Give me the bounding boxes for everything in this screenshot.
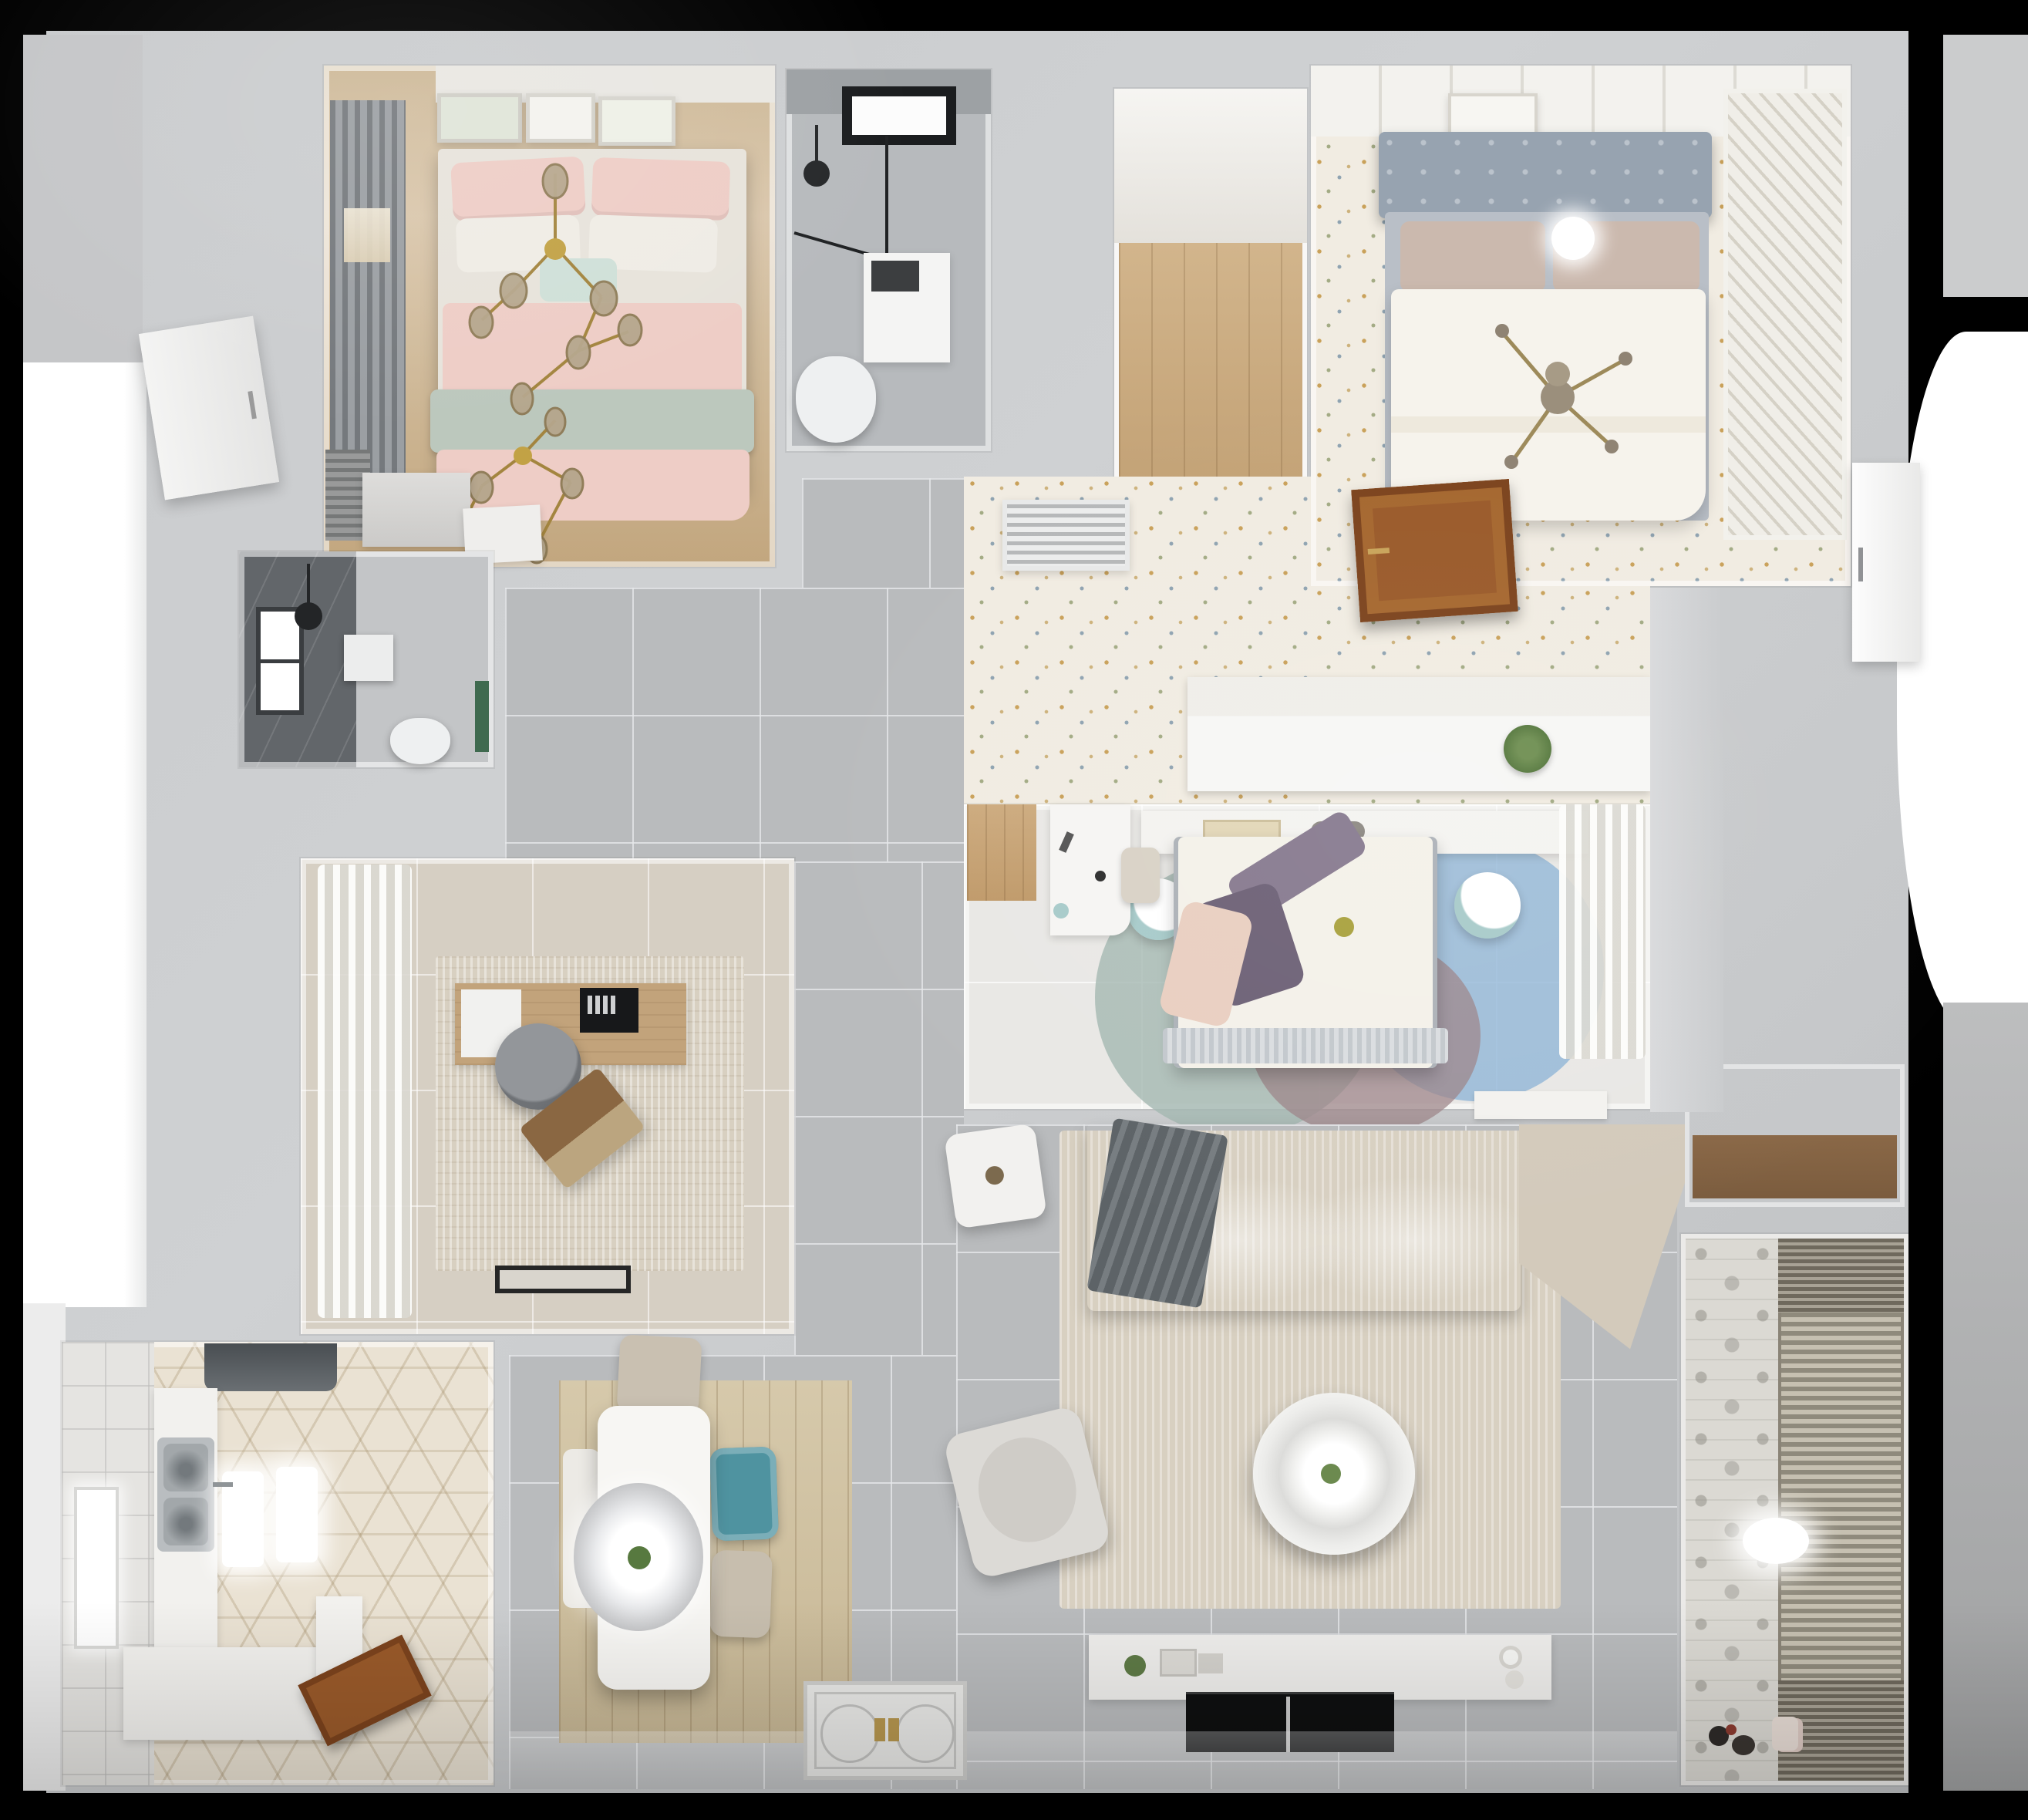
ceiling-wedge (1114, 89, 1307, 243)
bed-floral (1174, 837, 1437, 1068)
room-living (956, 1124, 1677, 1789)
toilet (390, 718, 450, 764)
storage-cabinet (864, 253, 950, 362)
console-frame-1 (1160, 1649, 1197, 1677)
floor-item-dark-2 (1732, 1735, 1755, 1755)
skylight-window (842, 86, 956, 145)
room-balcony (1681, 1234, 1908, 1785)
shower-arm (815, 125, 818, 163)
island-counter (123, 1647, 321, 1740)
side-table-plant (984, 1165, 1005, 1186)
sink-basin-1 (163, 1444, 208, 1491)
cabinet-controls (871, 261, 919, 292)
door-mat (495, 1266, 631, 1293)
window-mullion (261, 659, 299, 663)
exterior-right-white-blob (1897, 332, 2028, 1026)
exterior-right-bottom (1943, 1003, 2028, 1791)
console-vase-1 (1499, 1646, 1522, 1669)
sheer-curtains (318, 865, 412, 1318)
corridor-spur (802, 478, 964, 588)
room-corridor-upper (505, 588, 964, 861)
oval-pendant-lamp (574, 1483, 703, 1631)
footboard-stripe (1163, 1028, 1448, 1063)
pendant-light-glow-2 (276, 1467, 318, 1562)
wood-side-panel (967, 804, 1036, 901)
tufted-headboard (1379, 132, 1712, 218)
round-coffee-table (1253, 1393, 1415, 1555)
pen-cup (1059, 831, 1074, 853)
air-vent-grille (1002, 500, 1130, 571)
room-entry-foyer (509, 1731, 1677, 1789)
potted-plant (1504, 725, 1551, 773)
floral-sprig (1334, 917, 1354, 937)
laptop-keys (588, 996, 618, 1014)
console-plant (1124, 1655, 1146, 1677)
blind-stack-top (1778, 1239, 1904, 1313)
half-wall-console (1187, 677, 1650, 791)
open-wood-door (1351, 479, 1518, 622)
console-vase-2 (1505, 1670, 1524, 1689)
patterned-tile-wall (1686, 1239, 1778, 1781)
faucet (213, 1482, 233, 1487)
exterior-left-bottom (23, 1303, 66, 1791)
ceiling-light (1743, 1518, 1809, 1564)
teal-chair (709, 1447, 779, 1542)
dresser (362, 473, 470, 547)
shower-arm (307, 564, 310, 604)
plant-strip (475, 681, 489, 752)
open-white-door-bedroom2 (1852, 463, 1920, 662)
table-plant (1321, 1464, 1341, 1484)
door-handle (1858, 548, 1863, 581)
laptop (580, 988, 638, 1033)
gold-door-handles (874, 1718, 885, 1741)
wall-niche-box (344, 635, 393, 681)
gold-door-handle-2 (888, 1718, 899, 1741)
desk-chair (1121, 848, 1160, 903)
room-study (301, 858, 794, 1334)
double-basin-sink (157, 1437, 214, 1552)
plant-centerpiece (628, 1546, 651, 1569)
slatted-wardrobe (1723, 89, 1847, 540)
side-table (944, 1123, 1047, 1228)
door-arc-right (896, 1704, 955, 1763)
rain-shower-head (295, 602, 322, 630)
wood-shelf (1693, 1135, 1897, 1198)
room-bedroom-kids (964, 804, 1650, 1109)
door-handle (1368, 548, 1390, 554)
range-hood (204, 1343, 337, 1391)
desk-lamp-icon (1095, 871, 1106, 881)
beige-chair (709, 1550, 773, 1639)
rain-shower-head (803, 160, 830, 187)
exterior-left-white (23, 362, 147, 1307)
toilet (796, 356, 876, 443)
sink-basin-2 (163, 1498, 208, 1545)
nightstand-lamp-right (1454, 872, 1521, 939)
door-arc-left (820, 1704, 879, 1763)
front-door-panel (803, 1681, 967, 1780)
floor-item-red (1726, 1724, 1737, 1735)
venetian-blinds (1778, 1239, 1904, 1781)
tv-console (1089, 1635, 1551, 1700)
console-frame-2 (1198, 1653, 1223, 1673)
room-closet (1114, 89, 1307, 544)
room-bedroom-blush (324, 66, 775, 567)
exterior-right-top (1943, 35, 2028, 297)
corridor-lower (794, 861, 964, 1355)
room-kitchen (62, 1342, 494, 1785)
door-handle (248, 391, 257, 419)
sheer-curtain (1559, 804, 1646, 1059)
teal-pot (1053, 903, 1069, 918)
ceiling-light (1551, 217, 1595, 260)
sputnik-chandelier (1442, 281, 1673, 513)
right-wall-strip (1650, 588, 1723, 1112)
floor-item-cups (1772, 1717, 1798, 1751)
exterior-left-top (23, 35, 143, 366)
chair-top (616, 1334, 702, 1415)
window (74, 1487, 119, 1649)
armchair-seat (968, 1427, 1087, 1552)
floorplan-render (0, 0, 2028, 1820)
room-shower (239, 551, 494, 767)
room-bathroom-skylight (787, 69, 991, 451)
door-mat (1474, 1091, 1607, 1119)
